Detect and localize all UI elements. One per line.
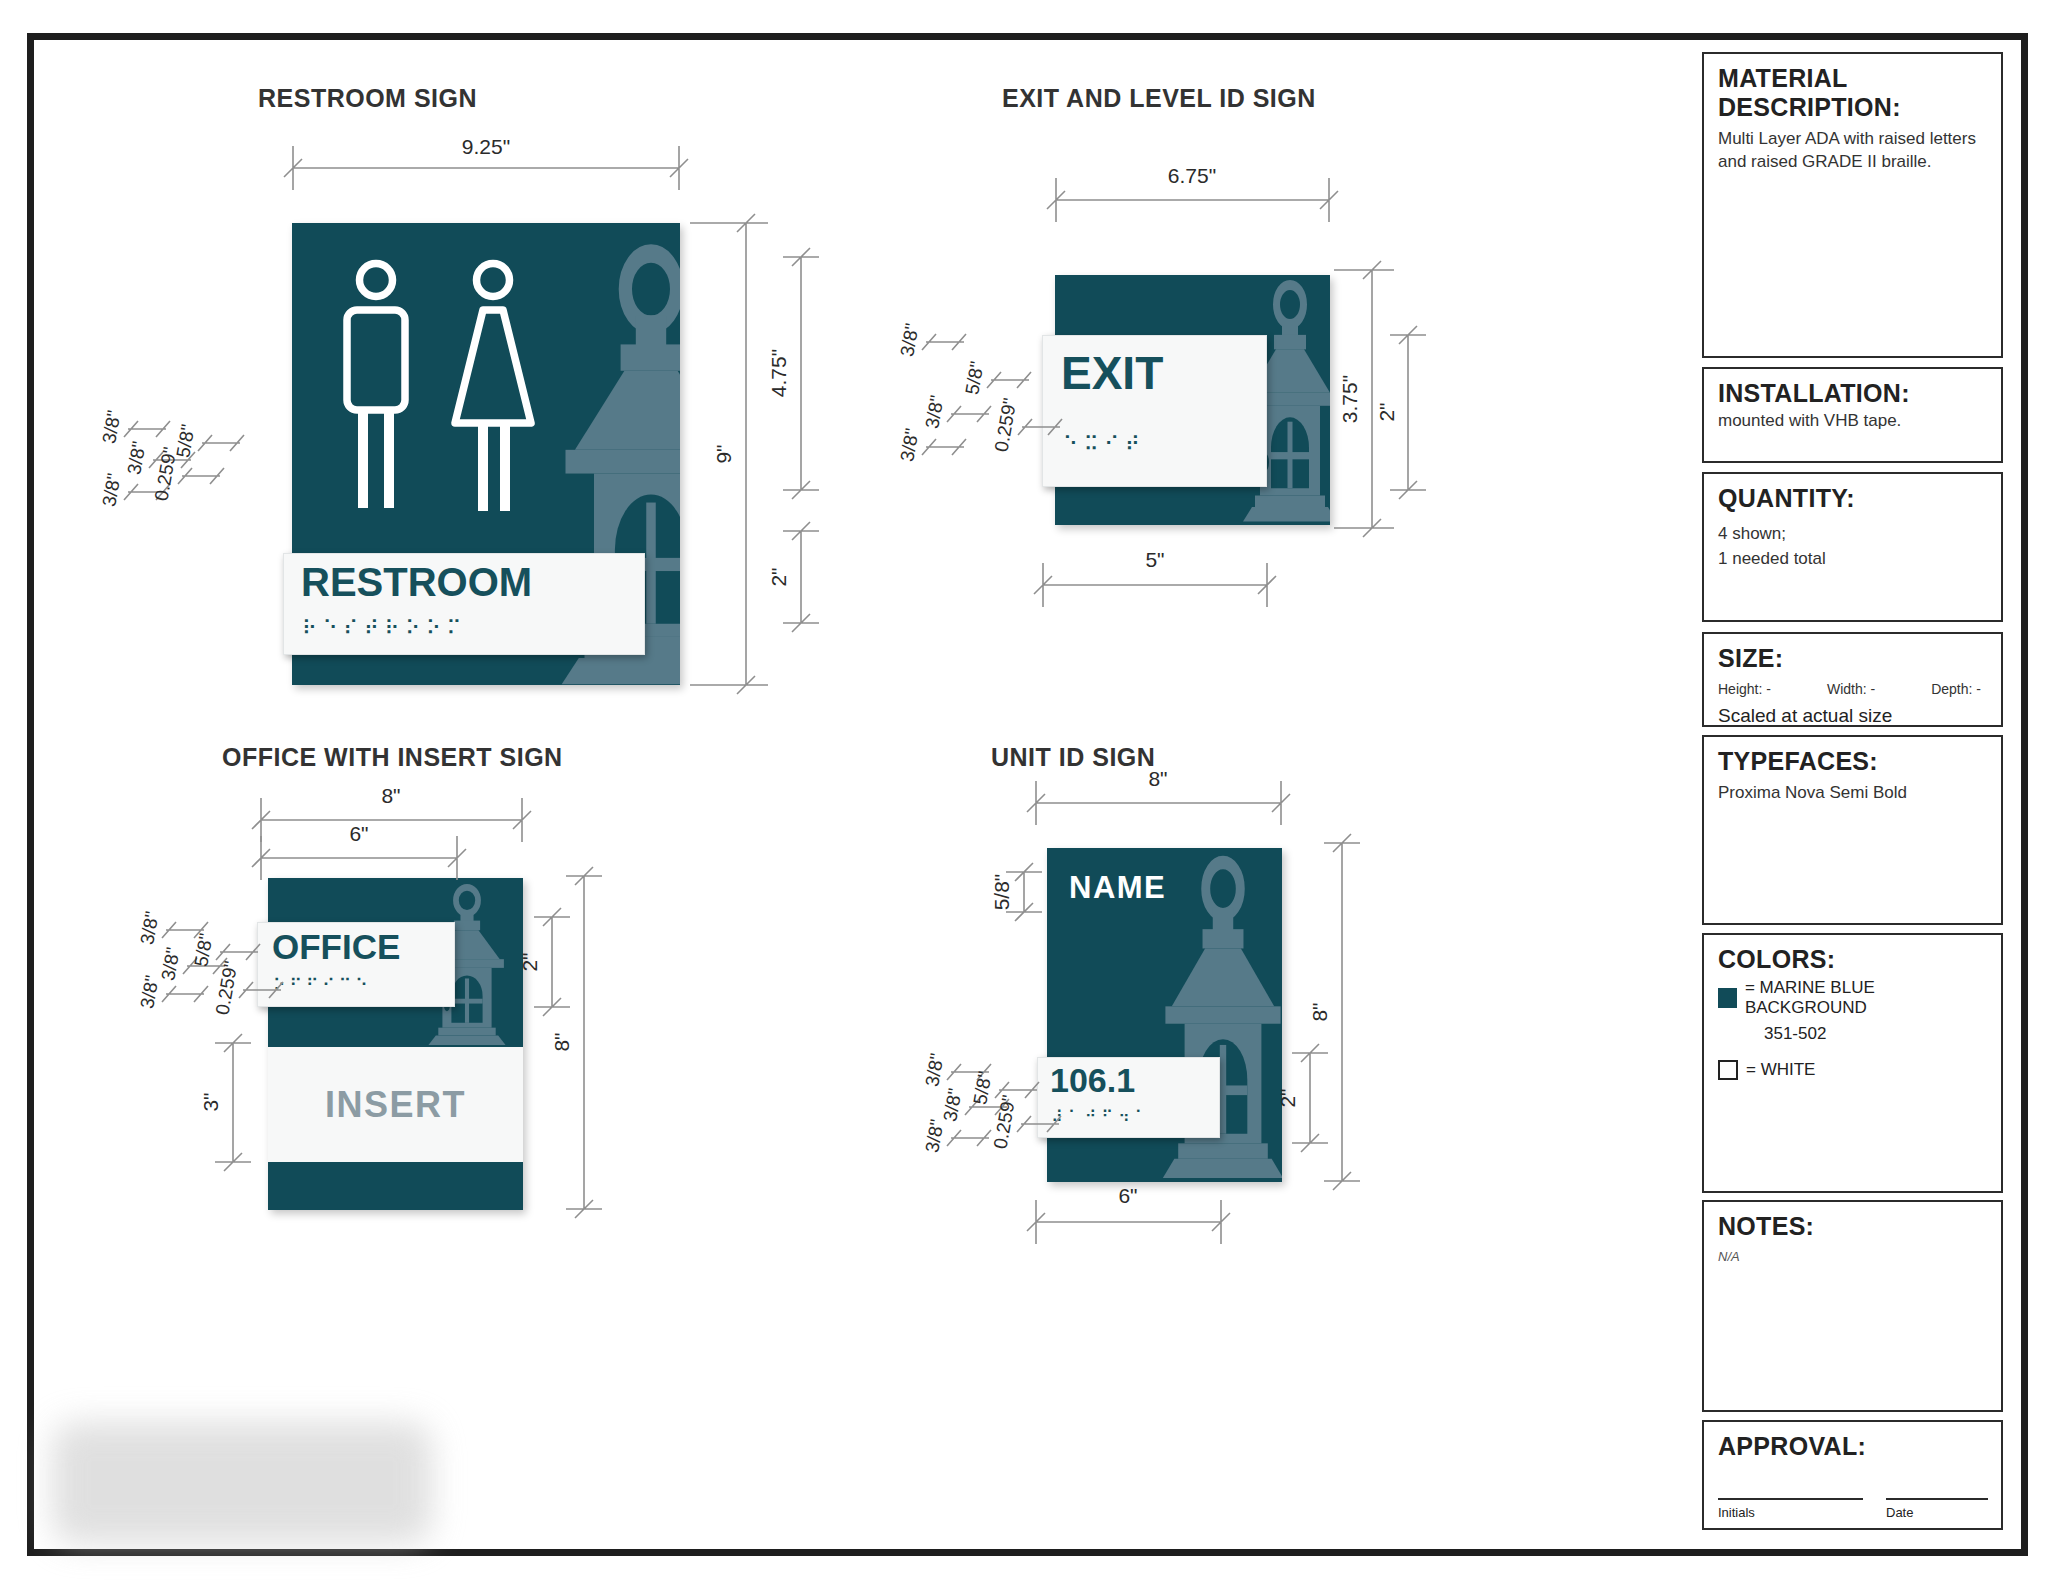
- white-swatch: [1718, 1060, 1738, 1080]
- office-height-dim: 8": [550, 1032, 574, 1051]
- unit-name-label: NAME: [1069, 870, 1166, 906]
- office-section-title: OFFICE WITH INSERT SIGN: [222, 743, 563, 772]
- exit-section-title: EXIT AND LEVEL ID SIGN: [1002, 84, 1316, 113]
- unit-name-offset-dim: 5/8": [990, 874, 1014, 911]
- restroom-braille: ⠗⠑⠎⠞⠗⠕⠕⠍: [302, 616, 467, 640]
- exit-braille: ⠑⠭⠊⠞: [1063, 432, 1146, 456]
- approval-title: APPROVAL:: [1718, 1432, 1987, 1461]
- size-values-row: Height: - Width: - Depth: -: [1718, 681, 1987, 697]
- office-insert-height-dim: 3": [199, 1092, 223, 1111]
- unit-height-dim: 8": [1308, 1002, 1332, 1021]
- office-braille: ⠕⠋⠋⠊⠉⠑: [273, 975, 372, 995]
- size-panel: SIZE: Height: - Width: - Depth: - Scaled…: [1702, 632, 2003, 727]
- restroom-width-dim: 9.25": [462, 135, 510, 159]
- initials-label: Initials: [1718, 1505, 1755, 1520]
- unit-width-dim: 8": [1148, 767, 1167, 791]
- restroom-plate-text: RESTROOM: [301, 560, 532, 605]
- restroom-pictograms: [330, 253, 560, 545]
- exit-plate-width-dim: 5": [1145, 548, 1164, 572]
- restroom-height-dim: 9": [712, 444, 736, 463]
- quantity-line-1: 4 shown;: [1718, 523, 1987, 546]
- marine-blue-code: 351-502: [1764, 1024, 1987, 1044]
- white-label: = WHITE: [1746, 1060, 1815, 1080]
- typefaces-title: TYPEFACES:: [1718, 747, 1987, 776]
- insert-label: INSERT: [325, 1084, 466, 1126]
- size-width-value: Width: -: [1827, 681, 1875, 697]
- marine-blue-color-row: = MARINE BLUE BACKGROUND: [1718, 978, 1987, 1018]
- unit-braille: ⠼⠁⠚⠋⠲⠁: [1051, 1107, 1151, 1126]
- notes-title: NOTES:: [1718, 1212, 1987, 1241]
- quantity-title: QUANTITY:: [1718, 484, 1987, 513]
- size-note: Scaled at actual size: [1718, 705, 1987, 727]
- date-label: Date: [1886, 1505, 1913, 1520]
- notes-panel: NOTES: N/A: [1702, 1200, 2003, 1412]
- unit-plate-width-dim: 6": [1118, 1184, 1137, 1208]
- size-height-value: Height: -: [1718, 681, 1771, 697]
- material-description-panel: MATERIAL DESCRIPTION: Multi Layer ADA wi…: [1702, 52, 2003, 358]
- typefaces-panel: TYPEFACES: Proxima Nova Semi Bold: [1702, 735, 2003, 925]
- material-description-body: Multi Layer ADA with raised letters and …: [1718, 128, 1987, 174]
- quantity-panel: QUANTITY: 4 shown; 1 needed total: [1702, 472, 2003, 622]
- installation-title: INSTALLATION:: [1718, 379, 1987, 408]
- initials-signature-line: [1718, 1498, 1863, 1500]
- colors-panel: COLORS: = MARINE BLUE BACKGROUND 351-502…: [1702, 933, 2003, 1193]
- exit-plate: EXIT ⠑⠭⠊⠞: [1042, 335, 1267, 487]
- restroom-upper-dim: 4.75": [767, 349, 791, 397]
- office-plate: OFFICE ⠕⠋⠋⠊⠉⠑: [257, 922, 455, 1007]
- office-plate-text: OFFICE: [272, 927, 400, 967]
- size-depth-value: Depth: -: [1931, 681, 1981, 697]
- size-title: SIZE:: [1718, 644, 1987, 673]
- unit-plate-height-dim: 2": [1276, 1088, 1300, 1107]
- marine-blue-swatch: [1718, 988, 1737, 1008]
- sign-spec-sheet: RESTROOM SIGN EXIT AND LEVEL ID SIGN OFF…: [0, 0, 2048, 1580]
- exit-height-dim: 3.75": [1338, 375, 1362, 423]
- man-icon: [347, 264, 405, 509]
- office-plate-width-dim: 6": [349, 822, 368, 846]
- exit-plate-text: EXIT: [1061, 346, 1163, 400]
- installation-body: mounted with VHB tape.: [1718, 410, 1987, 433]
- restroom-plate-height-dim: 2": [767, 567, 791, 586]
- office-plate-height-dim: 2": [518, 952, 542, 971]
- marine-blue-label: = MARINE BLUE BACKGROUND: [1745, 978, 1987, 1018]
- unit-plate-text: 106.1: [1050, 1061, 1135, 1100]
- colors-title: COLORS:: [1718, 945, 1987, 974]
- woman-icon: [455, 264, 531, 512]
- date-signature-line: [1886, 1498, 1988, 1500]
- unit-plate: 106.1 ⠼⠁⠚⠋⠲⠁: [1037, 1057, 1220, 1138]
- restroom-section-title: RESTROOM SIGN: [258, 84, 477, 113]
- material-description-title: MATERIAL DESCRIPTION:: [1718, 64, 1987, 122]
- office-width-dim: 8": [381, 784, 400, 808]
- exit-plate-height-dim: 2": [1375, 402, 1399, 421]
- exit-width-dim: 6.75": [1168, 164, 1216, 188]
- installation-panel: INSTALLATION: mounted with VHB tape.: [1702, 367, 2003, 463]
- approval-panel: APPROVAL: Initials Date: [1702, 1420, 2003, 1530]
- restroom-plate: RESTROOM ⠗⠑⠎⠞⠗⠕⠕⠍: [283, 553, 645, 655]
- white-color-row: = WHITE: [1718, 1060, 1987, 1080]
- insert-band: INSERT: [268, 1047, 523, 1162]
- notes-body: N/A: [1718, 1249, 1987, 1264]
- unit-section-title: UNIT ID SIGN: [991, 743, 1155, 772]
- blurred-logo: [52, 1422, 432, 1544]
- typefaces-body: Proxima Nova Semi Bold: [1718, 782, 1987, 805]
- quantity-line-2: 1 needed total: [1718, 548, 1987, 571]
